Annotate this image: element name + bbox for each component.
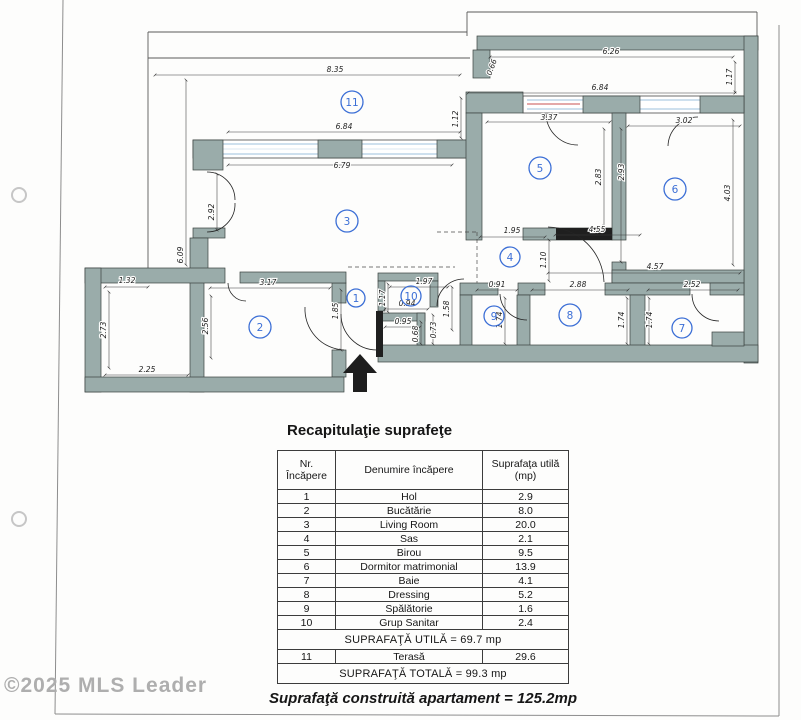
table-header: Nr.Încăpere Denumire încăpere Suprafaţa … (278, 451, 569, 490)
watermark: ©2025 MLS Leader (4, 674, 207, 698)
svg-text:7: 7 (679, 323, 686, 335)
surface-table: Nr.Încăpere Denumire încăpere Suprafaţa … (277, 450, 569, 684)
window-band-bedrooms (523, 96, 744, 113)
svg-text:2.56: 2.56 (201, 317, 210, 334)
svg-text:1.32: 1.32 (119, 276, 136, 285)
utila-row: SUPRAFAŢĂ UTILĂ = 69.7 mp (278, 630, 569, 650)
room-number-1: 1 (347, 289, 365, 307)
svg-text:0.95: 0.95 (395, 317, 412, 326)
svg-text:6.84: 6.84 (592, 83, 609, 92)
table-row: 5Birou9.5 (278, 546, 569, 560)
svg-text:1.74: 1.74 (617, 311, 626, 328)
svg-text:2.25: 2.25 (139, 365, 156, 374)
room-number-2: 2 (249, 316, 271, 338)
svg-text:2.93: 2.93 (617, 163, 626, 180)
svg-text:6: 6 (672, 184, 679, 196)
header-denumire: Denumire încăpere (336, 451, 483, 490)
totala-row: SUPRAFAŢĂ TOTALĂ = 99.3 mp (278, 664, 569, 684)
room-number-7: 7 (672, 318, 692, 338)
svg-text:4.55: 4.55 (589, 225, 606, 234)
svg-text:8.35: 8.35 (327, 65, 344, 74)
room-number-3: 3 (336, 210, 358, 232)
svg-text:1.97: 1.97 (416, 277, 433, 286)
svg-text:8: 8 (567, 310, 574, 322)
svg-text:1.17: 1.17 (725, 68, 734, 85)
punch-hole (12, 188, 26, 202)
svg-text:1.12: 1.12 (451, 110, 460, 127)
svg-text:0.91: 0.91 (489, 280, 506, 289)
svg-text:5: 5 (537, 163, 544, 175)
punch-hole (12, 512, 26, 526)
svg-text:3: 3 (344, 216, 351, 228)
room-number-6: 6 (664, 178, 686, 200)
table-row: 10Grup Sanitar2.4 (278, 616, 569, 630)
table-title: Recapitulaţie suprafeţe (287, 422, 452, 439)
svg-text:10: 10 (404, 291, 417, 303)
svg-text:4.03: 4.03 (723, 184, 732, 201)
table-row: 3Living Room20.0 (278, 518, 569, 532)
room-number-5: 5 (529, 157, 551, 179)
table-row: 9Spălătorie1.6 (278, 602, 569, 616)
table-body: 1Hol2.92Bucătărie8.03Living Room20.04Sas… (278, 490, 569, 630)
table-row: 7Baie4.1 (278, 574, 569, 588)
svg-text:11: 11 (345, 97, 358, 109)
header-suprafata: Suprafaţa utilă(mp) (483, 451, 569, 490)
table-row: 6Dormitor matrimonial13.9 (278, 560, 569, 574)
room-number-8: 8 (559, 304, 581, 326)
svg-text:2.92: 2.92 (207, 203, 216, 220)
svg-text:0.73: 0.73 (429, 321, 438, 338)
room-number-4: 4 (500, 247, 520, 267)
svg-text:1.74: 1.74 (645, 311, 654, 328)
svg-text:2.73: 2.73 (99, 321, 108, 338)
svg-text:1.95: 1.95 (504, 226, 521, 235)
table-row: 1Hol2.9 (278, 490, 569, 504)
svg-text:4: 4 (507, 252, 514, 264)
svg-text:6.26: 6.26 (603, 47, 620, 56)
room-number-11: 11 (341, 91, 363, 113)
svg-text:2.52: 2.52 (684, 280, 701, 289)
svg-text:1: 1 (353, 293, 360, 305)
svg-text:4.57: 4.57 (647, 262, 664, 271)
svg-text:1.85: 1.85 (331, 302, 340, 319)
svg-text:0.68: 0.68 (411, 325, 420, 342)
svg-text:2.83: 2.83 (594, 168, 603, 185)
svg-text:3.37: 3.37 (541, 113, 558, 122)
built-area-note: Suprafaţă construită apartament = 125.2m… (258, 690, 588, 707)
svg-text:1.58: 1.58 (442, 300, 451, 317)
table-row: 4Sas2.1 (278, 532, 569, 546)
svg-text:3.17: 3.17 (260, 278, 277, 287)
table-row: 2Bucătărie8.0 (278, 504, 569, 518)
terasa-row: 11 Terasă 29.6 (278, 650, 569, 664)
svg-text:9: 9 (491, 311, 498, 323)
svg-text:1.17: 1.17 (378, 289, 387, 306)
window-band-living (193, 140, 468, 170)
table-row: 8Dressing5.2 (278, 588, 569, 602)
header-nr: Nr.Încăpere (278, 451, 336, 490)
svg-text:2.88: 2.88 (570, 280, 587, 289)
entrance-arrow (343, 354, 377, 392)
scanned-floorplan-page: 8.35 6.26 0.66 1.17 6.84 6.84 6.79 6.09 … (0, 0, 801, 720)
svg-text:3.02: 3.02 (676, 116, 693, 125)
svg-text:6.84: 6.84 (336, 122, 353, 131)
svg-text:6.79: 6.79 (334, 161, 351, 170)
svg-text:1.10: 1.10 (539, 251, 548, 268)
svg-text:2: 2 (257, 322, 264, 334)
svg-text:6.09: 6.09 (176, 246, 185, 263)
